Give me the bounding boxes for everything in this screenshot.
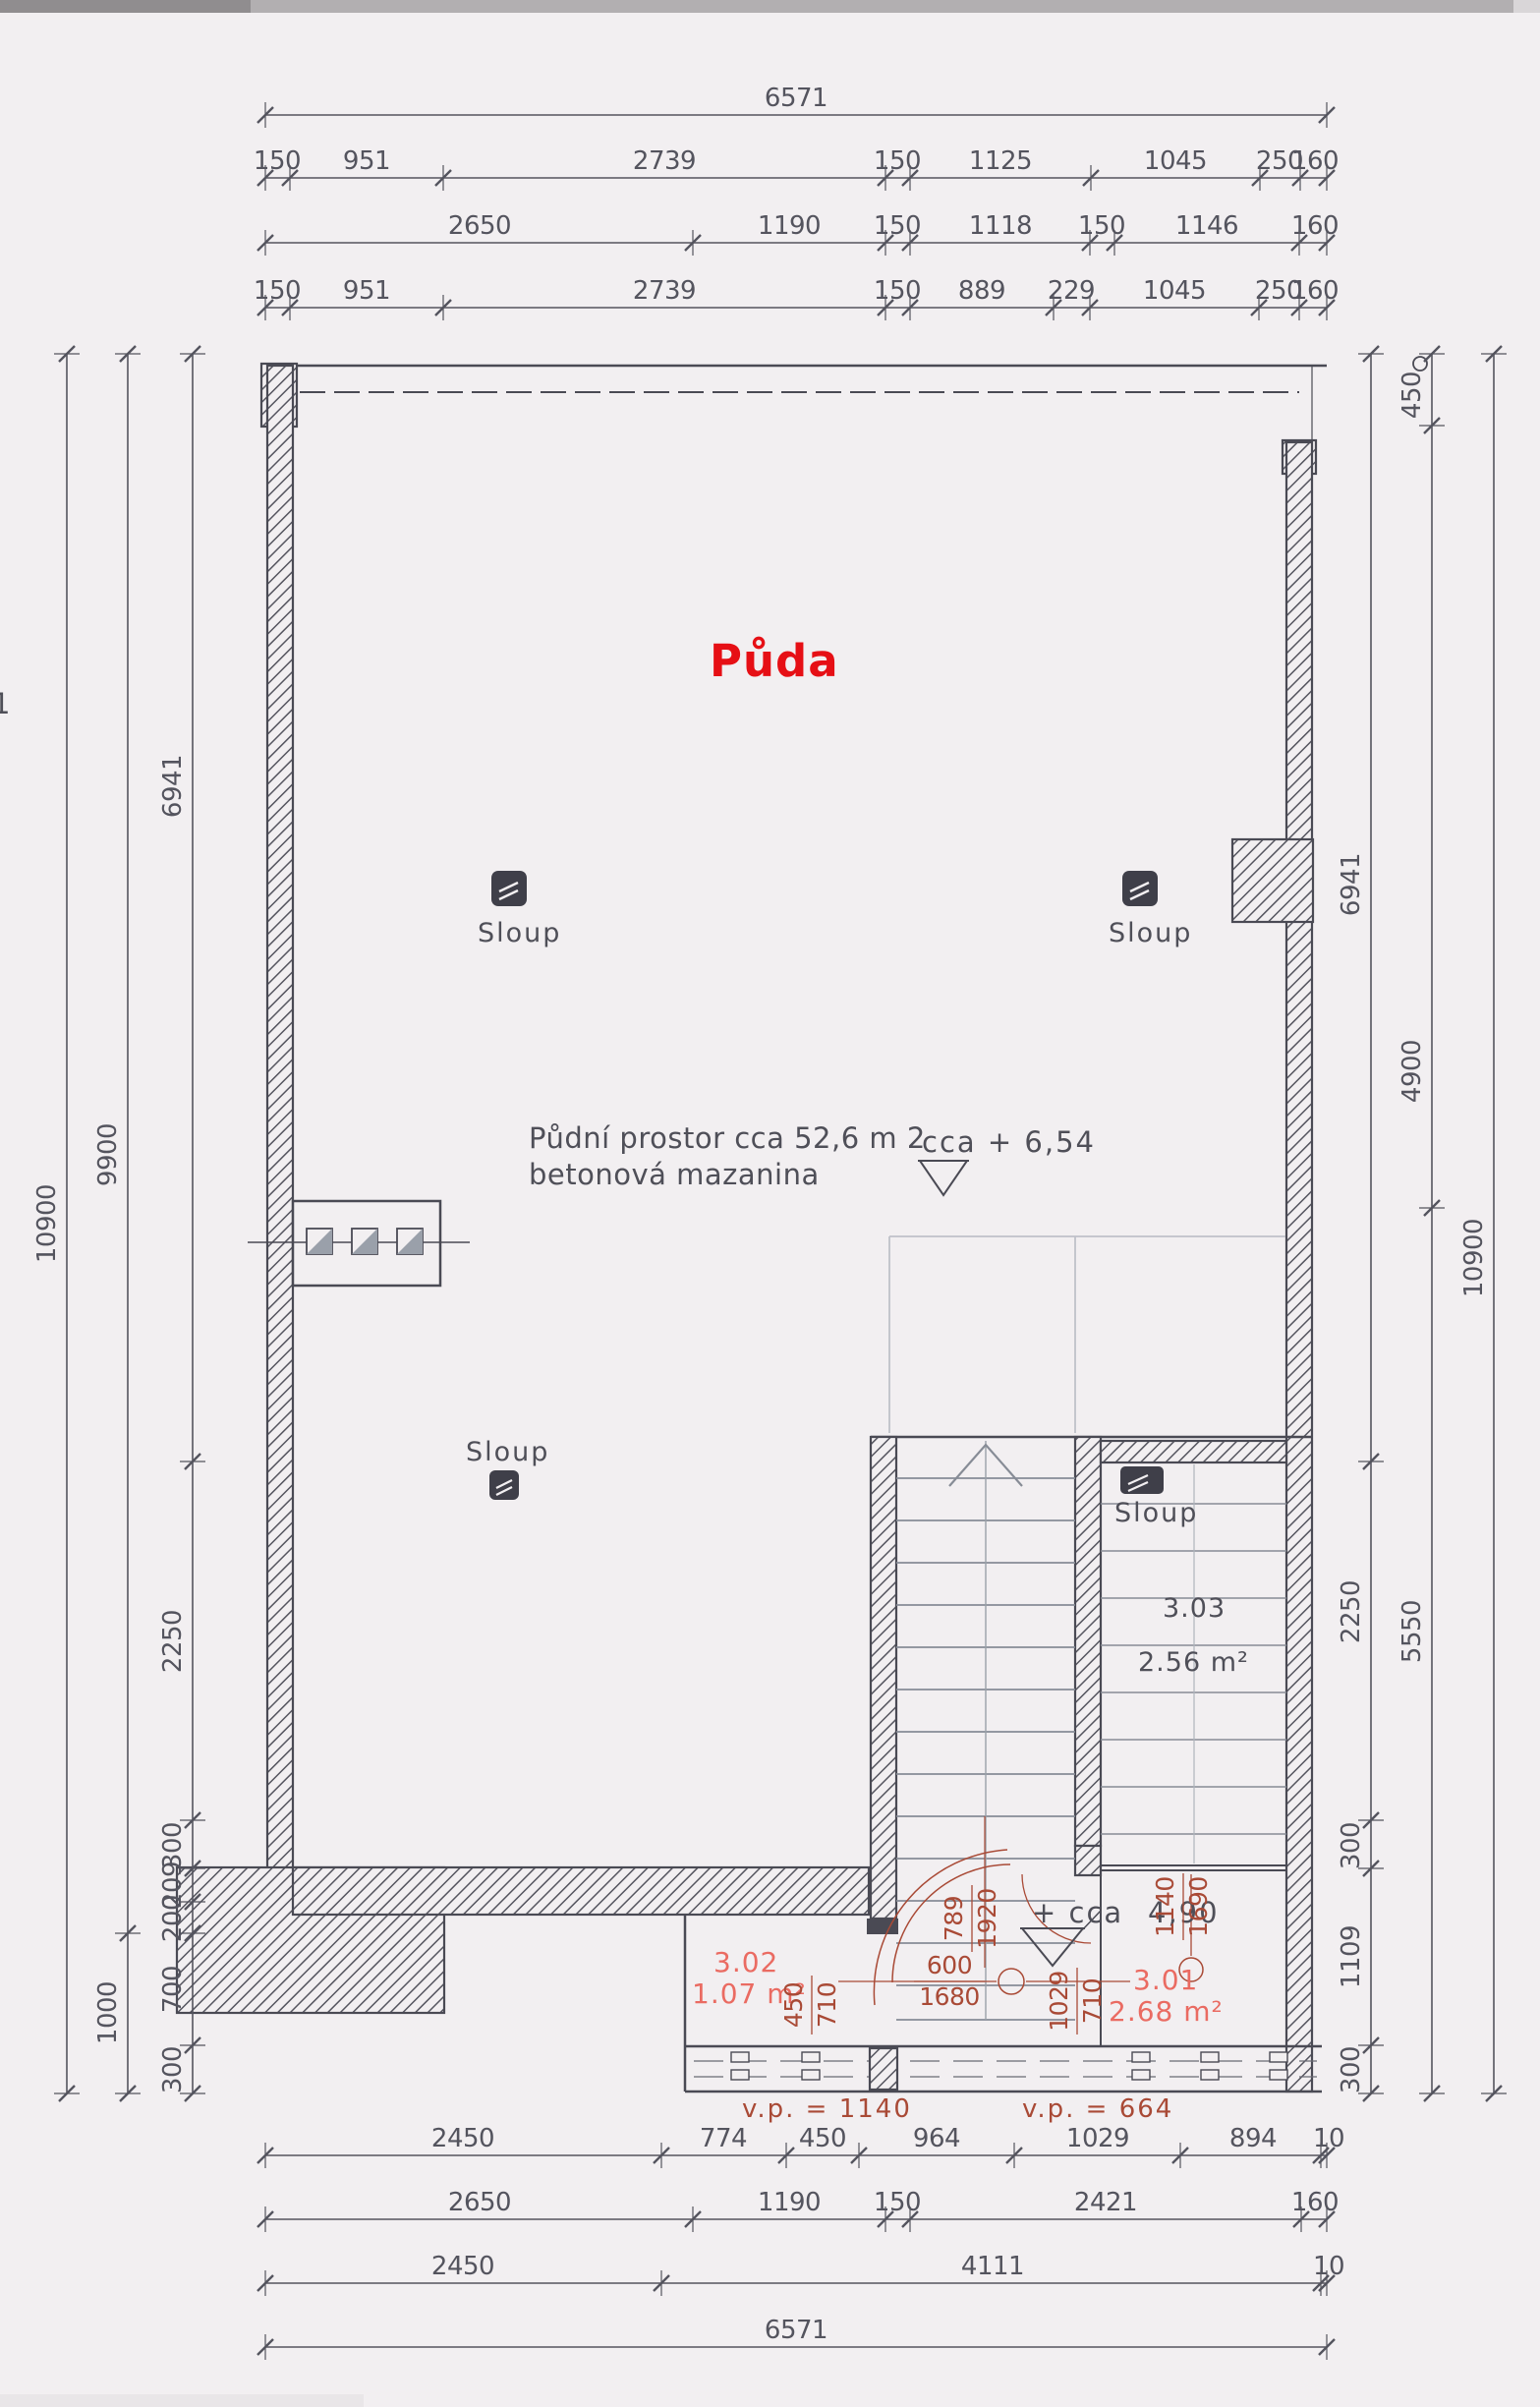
dim-label: 10 bbox=[1313, 2124, 1344, 2153]
svg-text:1029: 1029 bbox=[1045, 1971, 1073, 2032]
dim-label: 1045 bbox=[1143, 276, 1206, 306]
bottom-wall-band bbox=[293, 1867, 869, 1915]
dim-label: 150 bbox=[874, 2188, 921, 2217]
dim-label: 2739 bbox=[633, 146, 696, 176]
dim-label: 150 bbox=[874, 146, 921, 176]
dim-label: 300 bbox=[158, 2046, 188, 2093]
dim-label: 951 bbox=[343, 276, 390, 306]
dim-label: 200 bbox=[158, 1895, 188, 1942]
area-note-line2: betonová mazanina bbox=[529, 1158, 820, 1191]
svg-text:1140: 1140 bbox=[1151, 1876, 1179, 1937]
dim-label: 2450 bbox=[431, 2252, 494, 2281]
vp-label-left: v.p. = 1140 bbox=[742, 2094, 912, 2124]
dim-label: 6571 bbox=[765, 2316, 827, 2345]
dim-label: 150 bbox=[1078, 211, 1125, 241]
floor-plan-drawing: Půda Půdní prostor cca 52,6 m 2 betonová… bbox=[0, 0, 1540, 2407]
door-dim-450-710: 450 710 bbox=[779, 1976, 841, 2034]
column-icon bbox=[491, 871, 527, 906]
dim-label: 10 bbox=[1313, 2252, 1344, 2281]
room-area-303: 2.56 m² bbox=[1138, 1647, 1249, 1678]
dim-label: 300 bbox=[1337, 2046, 1366, 2093]
level-triangle-lower bbox=[1022, 1928, 1083, 1966]
dim-label: 1045 bbox=[1144, 146, 1207, 176]
dim-label: 774 bbox=[700, 2124, 747, 2153]
level-triangle-upper bbox=[920, 1161, 967, 1195]
dim-label: 160 bbox=[1291, 211, 1339, 241]
flue-symbols bbox=[307, 1229, 423, 1254]
room-number-302: 3.02 bbox=[713, 1946, 778, 1978]
stair-left-wall bbox=[871, 1437, 896, 1919]
dim-label: 229 bbox=[1048, 276, 1095, 306]
level-upper-label: cca + 6,54 bbox=[922, 1125, 1096, 1159]
svg-text:1690: 1690 bbox=[1184, 1876, 1213, 1937]
dim-label: 160 bbox=[1291, 146, 1339, 176]
dim-label: 700 bbox=[158, 1966, 188, 2013]
room303-top-wall bbox=[1101, 1441, 1286, 1462]
dim-label: 150 bbox=[874, 276, 921, 306]
dim-label: 1190 bbox=[758, 2188, 821, 2217]
svg-text:710: 710 bbox=[1078, 1978, 1107, 2024]
dim-label: 2650 bbox=[448, 2188, 511, 2217]
dim-label: 9900 bbox=[93, 1123, 123, 1186]
dim-label: 160 bbox=[1291, 276, 1339, 306]
level-lower-prefix: + cca bbox=[1032, 1896, 1123, 1929]
dim-label: 6941 bbox=[1337, 853, 1366, 916]
dim-label: 300 bbox=[1337, 1822, 1366, 1869]
dim-label: 2650 bbox=[448, 211, 511, 241]
column-icon bbox=[1120, 1466, 1164, 1494]
door-dim-600-1680: 600 1680 bbox=[914, 1951, 985, 2011]
door-dim-789-1920: 789 1920 bbox=[940, 1885, 1001, 1952]
dim-label: 4111 bbox=[961, 2252, 1024, 2281]
upper-flight-ghost bbox=[889, 1236, 1285, 1433]
svg-text:450: 450 bbox=[779, 1982, 808, 2028]
dim-label: 4900 bbox=[1397, 1040, 1427, 1103]
dim-label: 10900 bbox=[1459, 1219, 1489, 1297]
dim-label: 964 bbox=[913, 2124, 960, 2153]
plan-title: Půda bbox=[710, 635, 839, 687]
plan-walls bbox=[177, 364, 1327, 2092]
dim-label: 450 bbox=[799, 2124, 846, 2153]
axis-circle-mark bbox=[1413, 357, 1427, 371]
column-icon bbox=[489, 1470, 519, 1500]
dim-label: 1109 bbox=[1337, 1925, 1366, 1988]
vp-label-right: v.p. = 664 bbox=[1022, 2094, 1173, 2124]
dim-label: 6941 bbox=[158, 755, 188, 818]
dim-label: 150 bbox=[254, 276, 301, 306]
left-wall bbox=[267, 366, 293, 1907]
dim-label: 894 bbox=[1229, 2124, 1277, 2153]
dim-label: 2739 bbox=[633, 276, 696, 306]
dim-label: 2421 bbox=[1074, 2188, 1137, 2217]
stair-right-wall bbox=[1075, 1437, 1101, 1846]
right-chimney bbox=[1232, 839, 1313, 922]
dim-label: 5550 bbox=[1397, 1600, 1427, 1663]
dim-label: 951 bbox=[343, 146, 390, 176]
dim-label: 150 bbox=[874, 211, 921, 241]
area-note-line1: Půdní prostor cca 52,6 m 2 bbox=[529, 1121, 926, 1155]
column-icon bbox=[1122, 871, 1158, 906]
edge-mark: 1 bbox=[0, 687, 11, 720]
dim-label: 2250 bbox=[1337, 1580, 1366, 1643]
dim-label: 6571 bbox=[765, 84, 827, 113]
dim-label: 1118 bbox=[969, 211, 1032, 241]
dim-label: 450 bbox=[1397, 372, 1427, 419]
floor-plan-scan: Půda Půdní prostor cca 52,6 m 2 betonová… bbox=[0, 0, 1540, 2407]
window-pier bbox=[870, 2048, 897, 2090]
column-label: Sloup bbox=[1114, 1498, 1198, 1528]
dim-label: 1190 bbox=[758, 211, 821, 241]
svg-text:600: 600 bbox=[927, 1951, 972, 1979]
room-area-301: 2.68 m² bbox=[1109, 1995, 1224, 2028]
column-label: Sloup bbox=[478, 918, 561, 948]
dim-label: 150 bbox=[254, 146, 301, 176]
svg-text:1920: 1920 bbox=[973, 1888, 1001, 1949]
dim-label: 889 bbox=[958, 276, 1005, 306]
dim-label: 10900 bbox=[32, 1184, 62, 1263]
right-wall bbox=[1286, 442, 1312, 2092]
door-hinge bbox=[998, 1969, 1024, 1994]
svg-text:1680: 1680 bbox=[919, 1982, 980, 2011]
door-dim-1029-710: 1029 710 bbox=[1045, 1968, 1107, 2034]
room-number-301: 3.01 bbox=[1133, 1964, 1198, 1996]
dim-label: 1146 bbox=[1175, 211, 1238, 241]
room-number-303: 3.03 bbox=[1163, 1593, 1226, 1624]
column-label: Sloup bbox=[466, 1437, 549, 1467]
dim-label: 1125 bbox=[969, 146, 1032, 176]
svg-text:789: 789 bbox=[940, 1896, 968, 1941]
svg-text:710: 710 bbox=[813, 1982, 841, 2028]
dim-label: 1029 bbox=[1066, 2124, 1129, 2153]
dim-label: 2250 bbox=[158, 1610, 188, 1673]
column-label: Sloup bbox=[1109, 918, 1192, 948]
dim-label: 160 bbox=[1291, 2188, 1339, 2217]
dim-label: 1000 bbox=[93, 1981, 123, 2044]
window-mullions bbox=[731, 2052, 1287, 2080]
bottom-window-band bbox=[685, 2046, 1322, 2092]
dim-label: 2450 bbox=[431, 2124, 494, 2153]
